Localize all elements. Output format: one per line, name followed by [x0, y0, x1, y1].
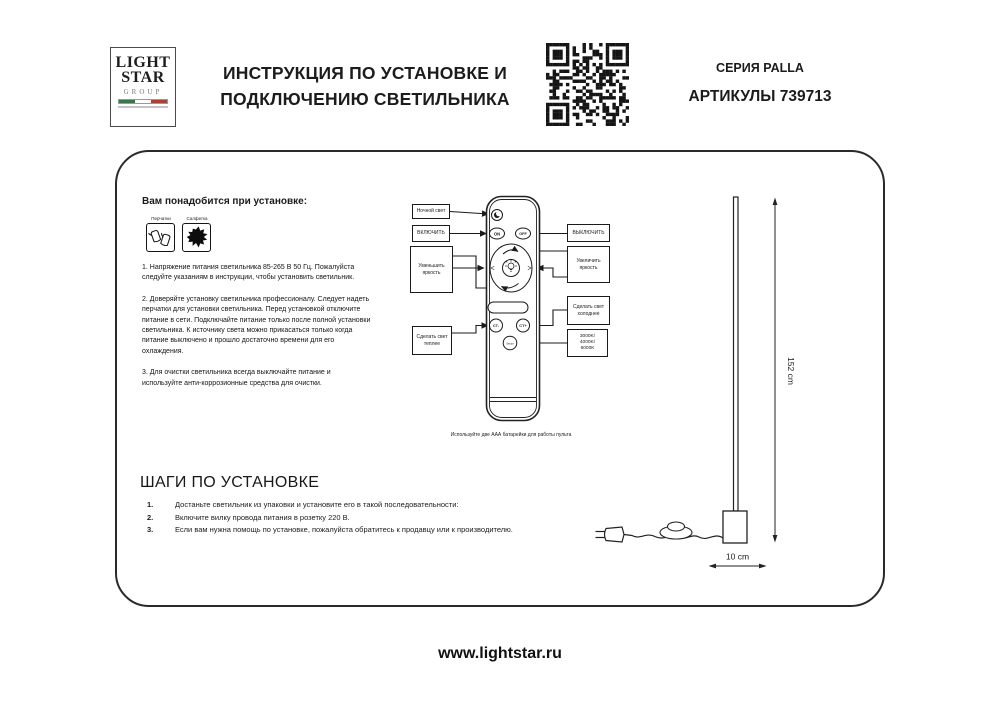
articul-label: АРТИКУЛЫ 739713 — [645, 88, 875, 106]
height-dimension: 152 cm — [773, 198, 796, 543]
lightstar-logo: LIGHT STAR GROUP — [110, 47, 176, 127]
steps-list: 1. Достаньте светильник из упаковки и ус… — [147, 499, 787, 537]
off-button-label: OFF — [519, 232, 527, 236]
step-text: Если вам нужна помощь по установке, пожа… — [175, 524, 787, 537]
sector-button-label: Sector — [506, 341, 514, 345]
label-decrease-brightness: Уменьшить яркость — [410, 246, 453, 293]
step-number: 3. — [147, 524, 175, 537]
instruction-sheet: LIGHT STAR GROUP ИНСТРУКЦИЯ ПО УСТАНОВКЕ… — [0, 0, 1000, 706]
step-number: 1. — [147, 499, 175, 512]
page-title: ИНСТРУКЦИЯ ПО УСТАНОВКЕ И ПОДКЛЮЧЕНИЮ СВ… — [190, 60, 540, 112]
ct-minus-button-label: CT- — [493, 323, 500, 328]
page-title-line1: ИНСТРУКЦИЯ ПО УСТАНОВКЕ И — [190, 60, 540, 86]
site-url: www.lightstar.ru — [0, 645, 1000, 663]
on-button-label: ON — [494, 231, 500, 236]
battery-note: Используйте две ААА батарейки для работы… — [411, 432, 611, 438]
label-night-light: Ночной свет — [412, 204, 450, 219]
label-on-text: ВКЛЮЧИТЬ — [417, 230, 445, 236]
step-text: Достаньте светильник из упаковки и устан… — [175, 499, 787, 512]
logo-word-group: GROUP — [111, 88, 175, 96]
gloves-label: Перчатки — [146, 215, 176, 223]
step-row: 1. Достаньте светильник из упаковки и ус… — [147, 499, 787, 512]
label-warm-text: Сделать свет теплее — [414, 334, 450, 346]
logo-underline — [118, 106, 168, 108]
label-warmer-light: Сделать свет теплее — [412, 326, 452, 355]
lamp-pole — [734, 197, 739, 511]
tool-gloves: Перчатки — [146, 215, 176, 252]
step-text: Включите вилку провода питания в розетку… — [175, 512, 787, 525]
step-row: 3. Если вам нужна помощь по установке, п… — [147, 524, 787, 537]
logo-word-star: STAR — [111, 70, 175, 85]
base-dimension-label: 10 cm — [726, 552, 749, 562]
label-dim-text: Уменьшить яркость — [412, 263, 451, 275]
steps-title: ШАГИ ПО УСТАНОВКЕ — [140, 474, 319, 492]
paragraph-1: 1. Напряжение питания светильника 85-265… — [142, 263, 372, 284]
ct-plus-button-label: CT+ — [519, 323, 527, 328]
label-night-text: Ночной свет — [417, 208, 446, 214]
need-title: Вам понадобится при установке: — [142, 196, 307, 207]
logo-word-light: LIGHT — [111, 55, 175, 70]
label-turn-on: ВКЛЮЧИТЬ — [412, 225, 450, 242]
gloves-icon — [146, 223, 175, 252]
paragraph-2: 2. Доверяйте установку светильника профе… — [142, 295, 372, 357]
tool-cloth: Салфетка — [182, 215, 212, 252]
series-label: СЕРИЯ PALLA — [655, 61, 865, 75]
cloth-label: Салфетка — [182, 215, 212, 223]
required-tools: Перчатки Салфетка — [146, 215, 212, 252]
step-row: 2. Включите вилку провода питания в розе… — [147, 512, 787, 525]
cloth-icon — [182, 223, 211, 252]
height-dimension-label: 152 cm — [786, 357, 796, 385]
dpad-left-glyph: < — [490, 266, 494, 273]
italian-flag-stripe — [118, 99, 168, 104]
qr-code-icon — [546, 43, 629, 126]
paragraph-3: 3. Для очистки светильника всегда выключ… — [142, 368, 372, 389]
base-dimension: 10 cm — [709, 552, 767, 569]
page-title-line2: ПОДКЛЮЧЕНИЮ СВЕТИЛЬНИКА — [190, 86, 540, 112]
step-number: 2. — [147, 512, 175, 525]
dpad-right-glyph: > — [527, 266, 531, 273]
safety-paragraphs: 1. Напряжение питания светильника 85-265… — [142, 263, 372, 400]
